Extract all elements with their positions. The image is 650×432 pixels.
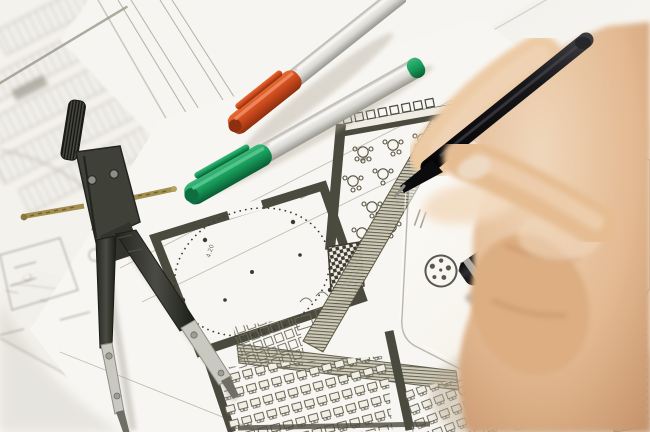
blueprint-scene: 4.20 4.40	[0, 0, 650, 432]
photo-canvas: 4.20 4.40	[0, 0, 650, 432]
pen-top	[575, 37, 591, 49]
